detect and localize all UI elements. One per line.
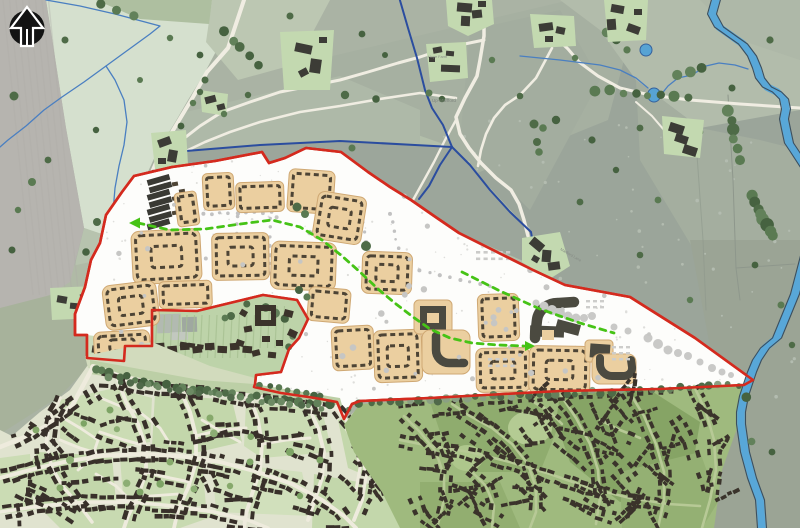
svg-text:Up-Marfford: Up-Marfford	[432, 98, 456, 103]
svg-text:Hope Farm: Hope Farm	[428, 55, 447, 59]
